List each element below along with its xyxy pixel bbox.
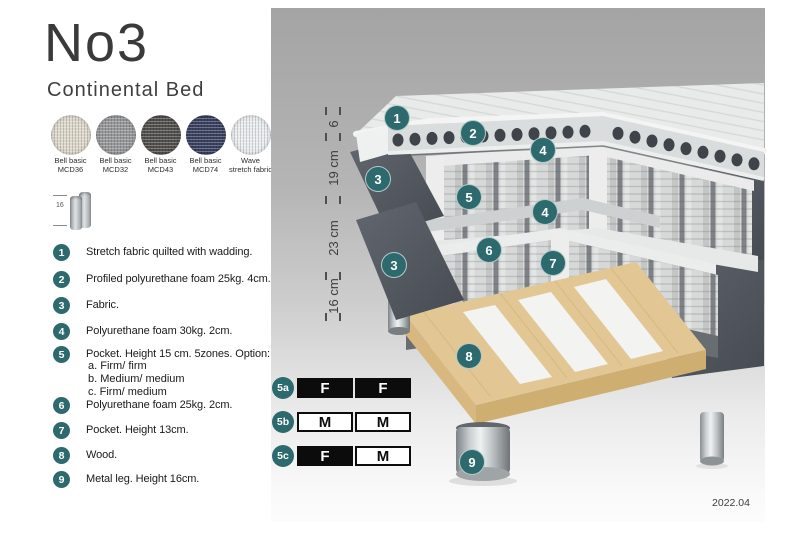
callout-1: 1	[384, 105, 410, 131]
dim-tick	[325, 313, 341, 321]
firmness-row-label-5c: 5c	[272, 445, 294, 467]
firmness-cell: M	[297, 412, 353, 432]
callout-6: 6	[476, 237, 502, 263]
callout-3-lower: 3	[381, 252, 407, 278]
dim-label-upper-box: 19 cm	[326, 138, 340, 198]
firmness-bar-5b: M M	[297, 412, 411, 432]
firmness-bar-5a: F F	[297, 378, 411, 398]
product-sheet: No3 Continental Bed Bell basicMCD36 Bell…	[0, 0, 800, 533]
callout-8: 8	[456, 343, 482, 369]
callout-9: 9	[459, 449, 485, 475]
firmness-cell: F	[355, 378, 411, 398]
firmness-cell: F	[297, 446, 353, 466]
callout-3-upper: 3	[365, 166, 391, 192]
revision-date: 2022.04	[690, 497, 750, 509]
firmness-row-label-5a: 5a	[272, 377, 294, 399]
callout-2: 2	[460, 120, 486, 146]
firmness-cell: M	[355, 412, 411, 432]
firmness-cell: M	[355, 446, 411, 466]
callout-4-lower: 4	[532, 199, 558, 225]
firmness-row-label-5b: 5b	[272, 411, 294, 433]
firmness-bar-5c: F M	[297, 446, 411, 466]
callout-5: 5	[456, 184, 482, 210]
dim-tick	[325, 196, 341, 204]
firmness-cell: F	[297, 378, 353, 398]
callout-4-upper: 4	[530, 137, 556, 163]
callout-7: 7	[540, 250, 566, 276]
dim-label-lower-box: 23 cm	[326, 208, 340, 268]
